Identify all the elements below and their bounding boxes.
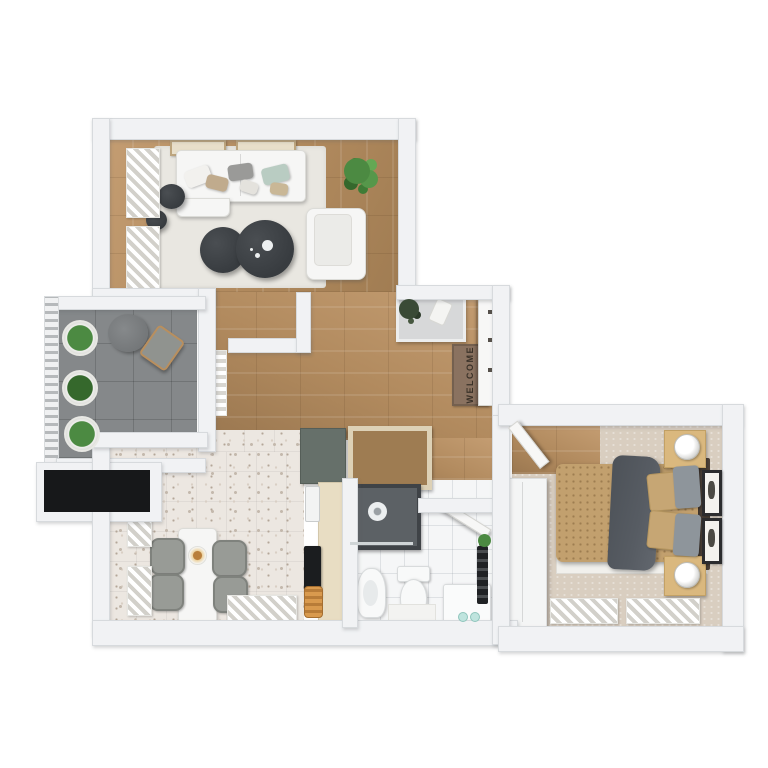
wall-balcony-top xyxy=(56,296,206,310)
wall-living-top xyxy=(92,118,416,140)
hall-storage-cabinet xyxy=(348,426,432,490)
balcony-plant-1 xyxy=(62,320,98,356)
wall-bath-top-right xyxy=(418,498,500,513)
wall-kitchen-top xyxy=(92,432,208,448)
front-door-hinge xyxy=(488,310,492,314)
kitchen-floor-strip xyxy=(214,430,304,452)
washer-knob-1 xyxy=(458,612,468,622)
wall-bedroom-top xyxy=(498,404,742,426)
balcony-plant-3 xyxy=(64,416,100,452)
shower-head xyxy=(368,502,387,521)
entry-console-plant xyxy=(399,299,419,319)
washer-knob-2 xyxy=(470,612,480,622)
balcony-railing xyxy=(44,296,59,472)
wall-partition-v xyxy=(296,292,311,353)
wall-hall-left xyxy=(198,288,216,452)
bidet-basin xyxy=(363,580,378,606)
sofa-pillow-gray xyxy=(227,162,254,181)
wall-living-left xyxy=(92,118,110,306)
kitchen-radiator-bottom xyxy=(227,595,297,622)
bedroom-art-frame-2 xyxy=(702,518,722,564)
bed-pillow-gray-2 xyxy=(673,513,702,557)
wall-bath-bedroom xyxy=(492,415,510,645)
wall-bottom xyxy=(92,620,518,646)
wall-bedroom-right xyxy=(722,404,744,652)
bedroom-radiator-2 xyxy=(626,598,700,624)
coffee-table-decor xyxy=(262,240,273,251)
living-blinds-upper xyxy=(126,148,160,218)
welcome-mat-text: WELCOME xyxy=(465,346,475,404)
window-box-glass xyxy=(44,470,150,512)
bedroom-radiator-1 xyxy=(550,598,618,624)
dining-plate xyxy=(188,546,207,565)
kitchen-sink xyxy=(305,486,320,522)
balcony-plant-2 xyxy=(62,370,98,406)
wardrobe-seam xyxy=(522,482,523,622)
kitchen-radiator-2 xyxy=(127,566,152,616)
side-table-1 xyxy=(158,184,185,209)
bathroom-plant xyxy=(478,534,491,547)
floor-plan: WELCOME xyxy=(0,0,768,768)
nightstand-top-lamp xyxy=(674,434,700,460)
armchair-cushion xyxy=(314,214,352,266)
living-blinds-lower xyxy=(126,226,160,294)
dining-chair-3 xyxy=(212,540,247,577)
dining-chair-1 xyxy=(150,538,185,575)
wall-living-right xyxy=(398,118,416,300)
sofa-pillow-beige xyxy=(269,182,288,196)
towel-radiator xyxy=(477,546,488,604)
bedroom-art-frame-1 xyxy=(702,470,722,516)
nightstand-bottom-lamp xyxy=(674,562,700,588)
living-plant xyxy=(344,158,370,184)
wall-bedroom-bottom xyxy=(498,626,744,652)
shower xyxy=(350,484,421,550)
kitchen-island-counter xyxy=(300,428,346,484)
wall-kitchen-left xyxy=(92,432,110,636)
dining-chair-2 xyxy=(149,574,184,611)
bread-basket xyxy=(304,586,323,618)
bed-pillow-gray-1 xyxy=(673,465,702,509)
wall-entry-right xyxy=(492,285,510,417)
shower-glass xyxy=(350,542,413,545)
wall-bath-left xyxy=(342,478,358,628)
